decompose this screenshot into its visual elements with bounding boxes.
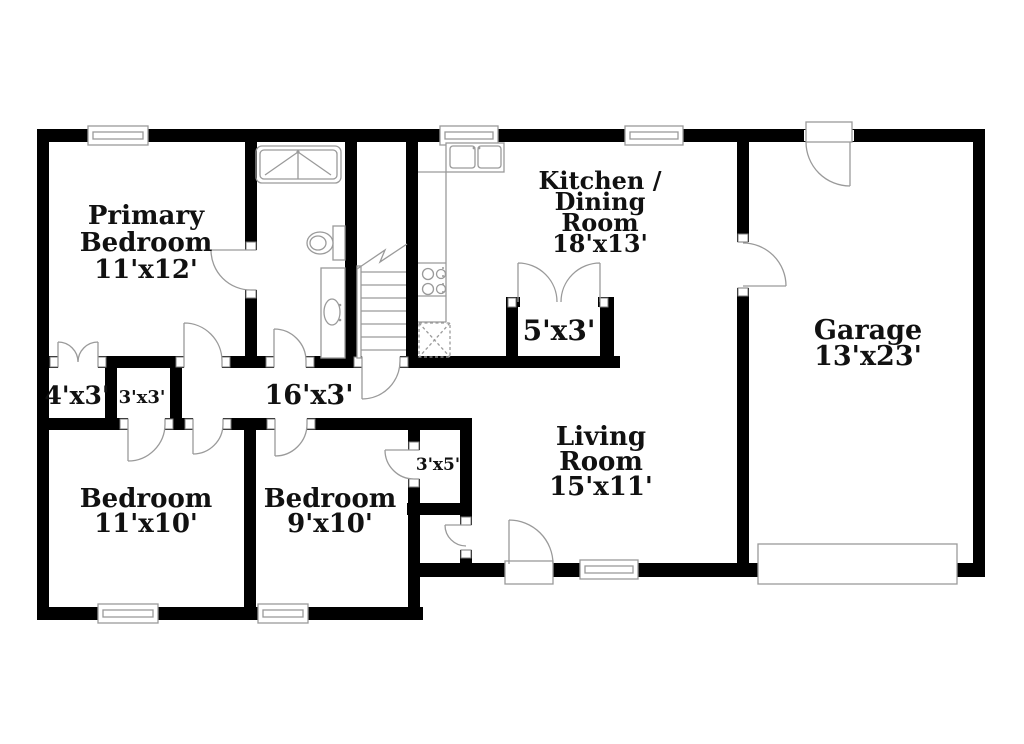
window-living-room (580, 560, 638, 579)
garage-overhead-door (758, 544, 957, 584)
bifold-door-primary-closet (58, 342, 98, 362)
dining-closet-label: 5'x3' (509, 314, 609, 347)
door-primary-bedroom (184, 323, 222, 361)
window-dining (625, 126, 683, 145)
primary-bedroom-label: Primary Bedroom 11'x12' (46, 203, 246, 284)
room-dims: 18'x13' (500, 233, 700, 254)
counter-edge (418, 172, 446, 322)
hall-closet-label: 3'x3' (112, 387, 172, 408)
kitchen-fixtures (418, 143, 504, 357)
toilet-icon (307, 226, 345, 260)
kitchen-dining-label: Kitchen / Dining Room 18'x13' (500, 170, 700, 254)
primary-closet-label: 4'x3' (37, 381, 117, 410)
bathtub-shower-icon (256, 146, 341, 183)
stairs-icon (357, 244, 407, 358)
door-bedroom-3 (275, 424, 307, 456)
door-garage-kitchen (743, 243, 786, 286)
wall-bottom-bedrooms (37, 607, 423, 620)
window-bedroom-3 (258, 604, 308, 623)
floor-plan-image: Primary Bedroom 11'x12' Kitchen / Dining… (0, 0, 1024, 744)
window-primary-bedroom (88, 126, 148, 145)
room-dims: 11'x10' (46, 512, 246, 537)
appliance-box-icon (419, 323, 450, 357)
door-front-entry (509, 520, 553, 564)
door-garage-entry (806, 142, 850, 186)
front-door-threshold (505, 561, 553, 584)
room-name-line: Primary (46, 203, 246, 230)
living-room-label: Living Room 15'x11' (501, 425, 701, 500)
room-dims: 9'x10' (230, 512, 430, 537)
vanity-sink-icon (321, 268, 345, 358)
garage-entry-door (806, 122, 852, 142)
wall-right (973, 129, 985, 577)
room-dims: 13'x23' (768, 344, 968, 370)
garage-label: Garage 13'x23' (768, 318, 968, 370)
room-dims: 15'x11' (501, 475, 701, 500)
bedroom-3-closet-label: 3'x5' (408, 455, 468, 475)
room-name-line: Bedroom (46, 230, 246, 257)
bedroom-2-label: Bedroom 11'x10' (46, 487, 246, 537)
door-bathroom-hall (274, 329, 306, 361)
door-hall-closet (128, 424, 165, 461)
room-dims: 11'x12' (46, 257, 246, 284)
bathroom-fixtures (256, 146, 345, 358)
door-bedroom-2 (193, 424, 223, 454)
floor-plan-drawing (0, 0, 1024, 744)
window-kitchen-sink (440, 126, 498, 145)
range-burners-icon (423, 267, 446, 295)
double-door-dining-closet (518, 263, 600, 302)
window-bedroom-2 (98, 604, 158, 623)
stairs-break-line (357, 244, 407, 269)
bedroom-3-label: Bedroom 9'x10' (230, 487, 430, 537)
double-sink-icon (446, 143, 504, 172)
hallway-label: 16'x3' (249, 380, 369, 411)
door-coat-closet (445, 525, 466, 546)
